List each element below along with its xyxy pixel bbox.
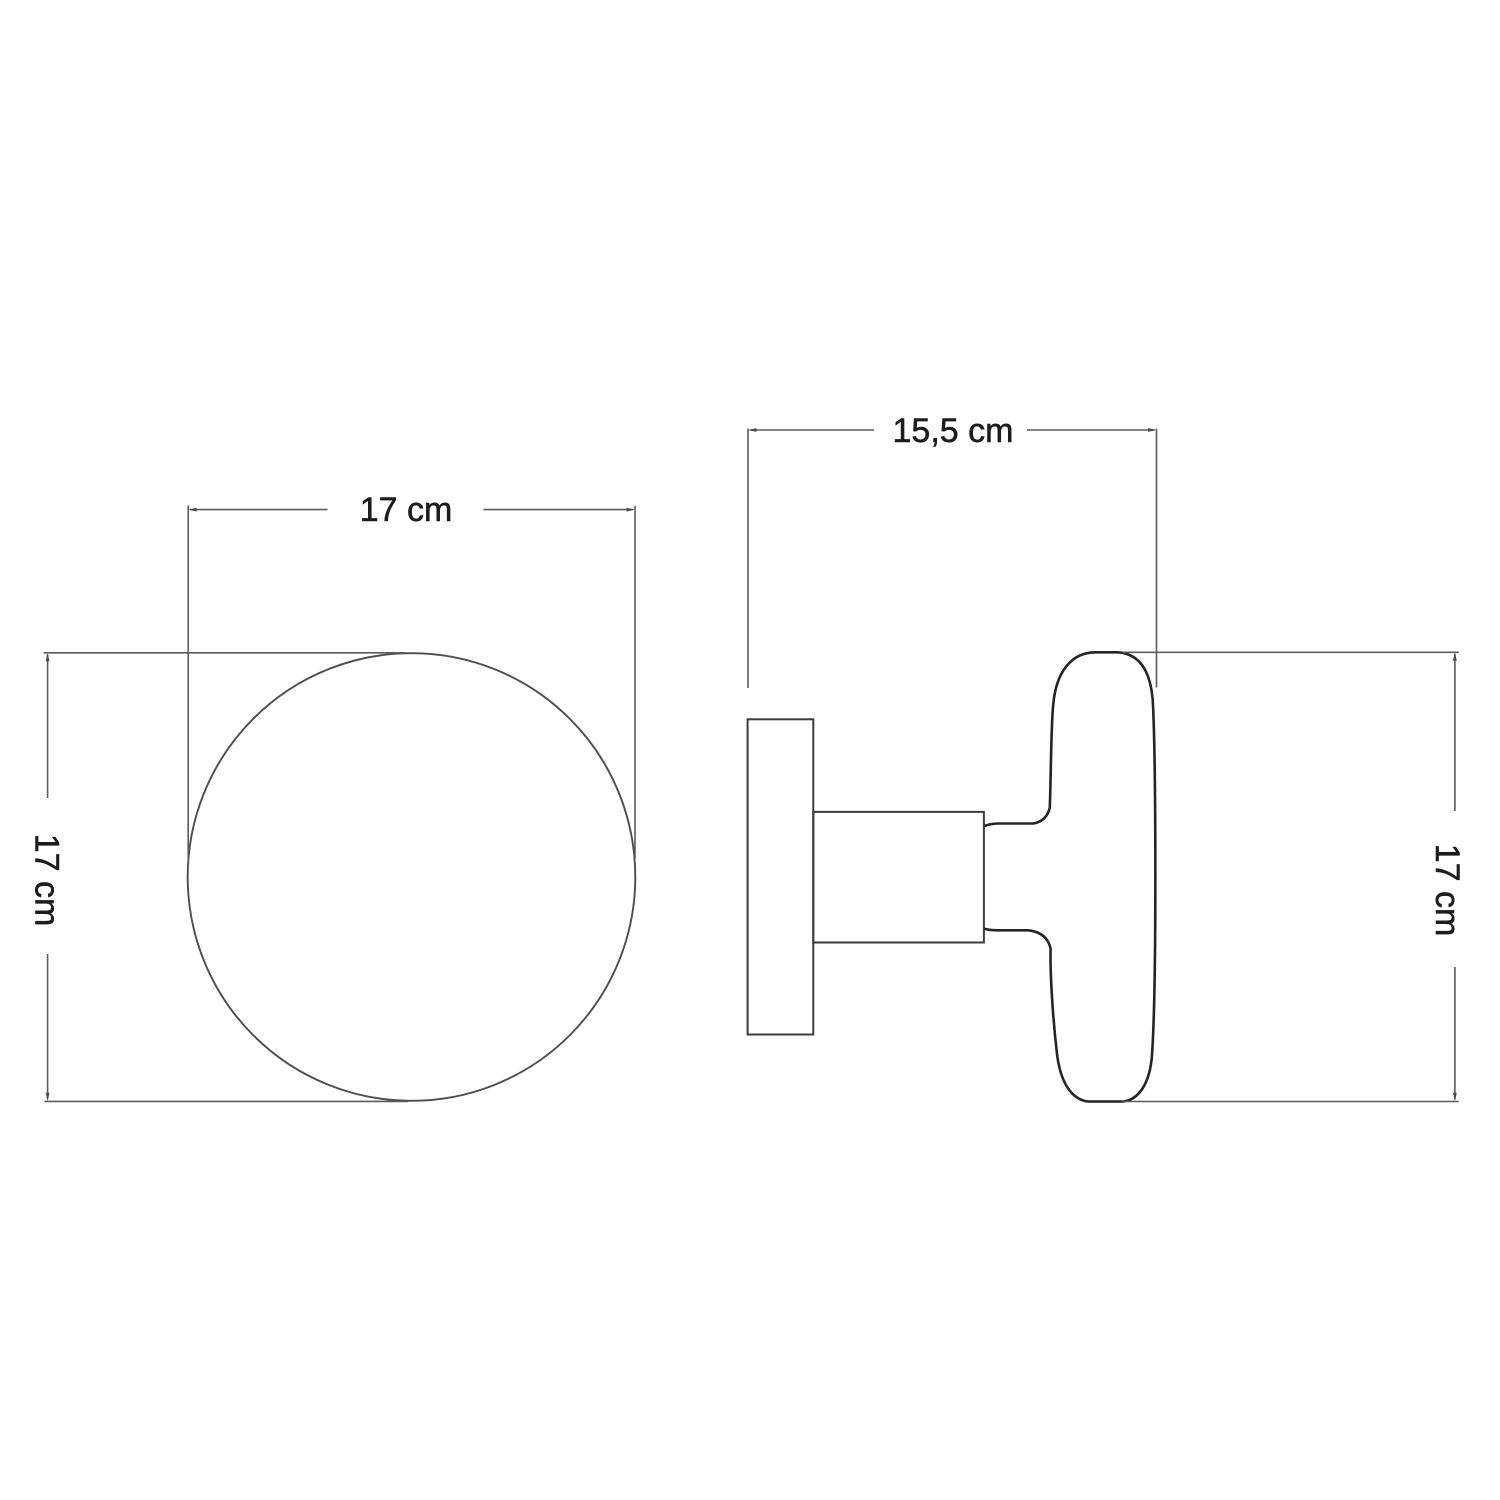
svg-text:17 cm: 17 cm — [1428, 844, 1466, 937]
svg-text:17 cm: 17 cm — [360, 491, 453, 529]
svg-text:15,5 cm: 15,5 cm — [893, 412, 1014, 450]
svg-text:17 cm: 17 cm — [28, 834, 66, 927]
